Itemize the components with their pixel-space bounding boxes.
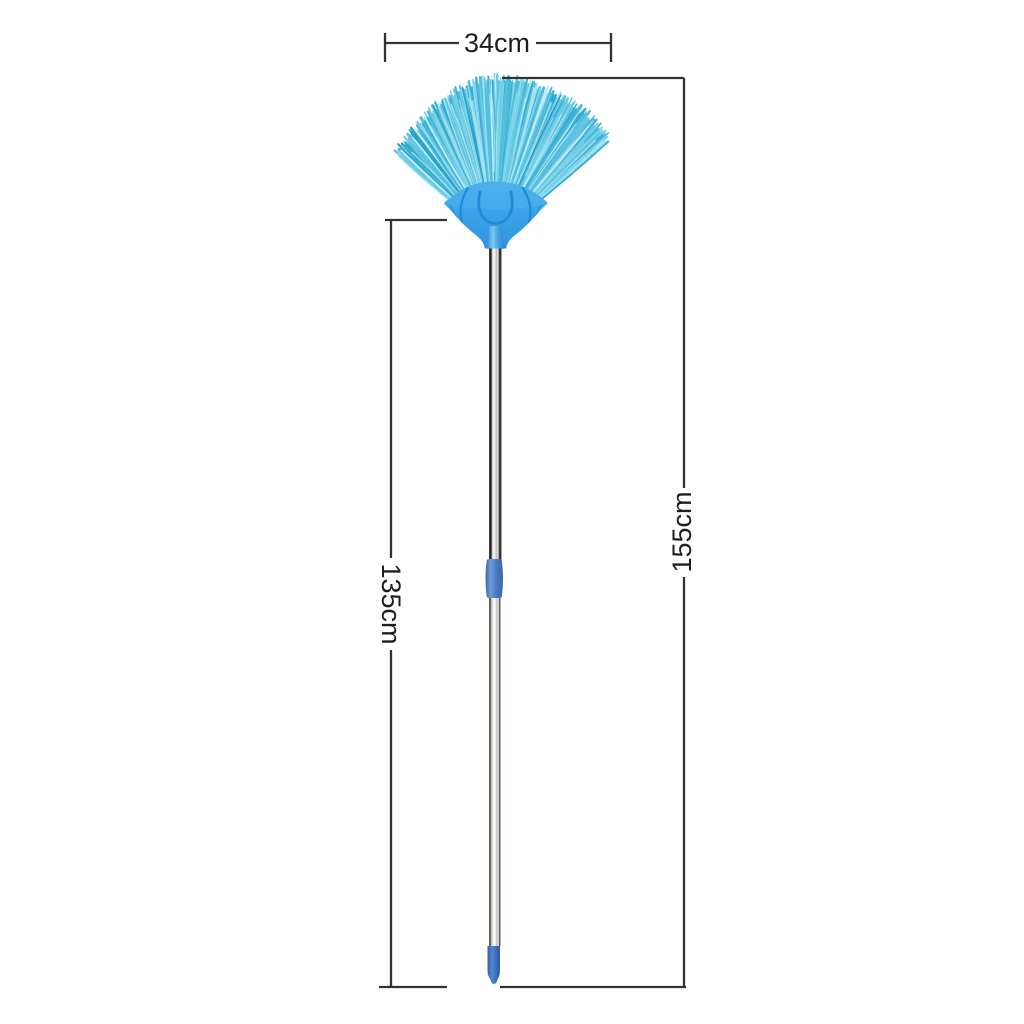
svg-text:135cm: 135cm xyxy=(376,563,406,644)
svg-text:155cm: 155cm xyxy=(667,491,697,572)
svg-text:34cm: 34cm xyxy=(464,28,530,58)
